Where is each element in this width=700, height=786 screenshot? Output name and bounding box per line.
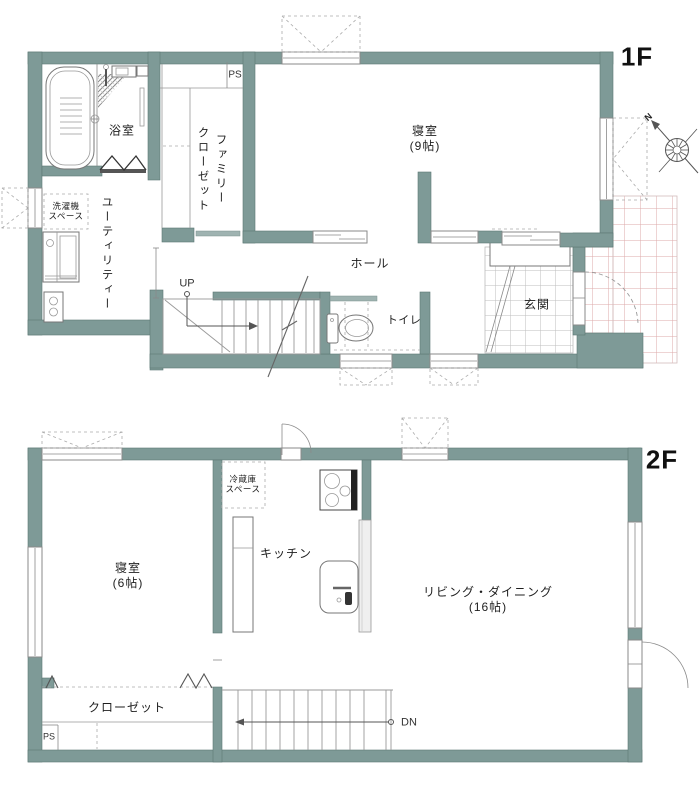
bedroom9-label: 寝室 (9帖)	[410, 124, 441, 154]
kitchen-label: キッチン	[260, 547, 312, 562]
bedroom6-size: (6帖)	[113, 576, 144, 591]
ps-label-2f: PS	[43, 730, 55, 745]
kitchen-sink-icon	[320, 561, 358, 613]
hall-label: ホール	[350, 257, 389, 272]
living-dining-size: (16帖)	[423, 600, 553, 615]
floorplan-image: 1F 浴室 ファミリー クローゼット PS 寝室 (9帖) 洗濯機 スペース ユ…	[0, 0, 700, 786]
vanity-icon	[43, 232, 79, 282]
sliding-door	[313, 231, 367, 243]
sliding-door	[502, 232, 560, 245]
bedroom6-label: 寝室 (6帖)	[113, 561, 144, 591]
shower-area	[97, 64, 148, 166]
utility-label: ユーティリティー	[99, 196, 114, 312]
toilet-label: トイレ	[387, 314, 422, 329]
living-dining-label: リビング・ダイニング (16帖)	[423, 585, 553, 615]
bedroom9-size: (9帖)	[410, 139, 441, 154]
floor1-label: 1F	[621, 50, 653, 65]
toilet-sliding-door	[330, 296, 377, 301]
family-closet-line2: クローゼット	[195, 127, 210, 214]
living-dining-name: リビング・ダイニング	[423, 585, 553, 600]
stairs-down-icon	[222, 690, 394, 750]
closet-label: クローゼット	[88, 701, 166, 716]
closet-sliding-door	[196, 231, 240, 236]
ps-label-1f: PS	[228, 68, 241, 83]
water-heater-icon	[44, 292, 63, 322]
family-closet-label: ファミリー クローゼット	[195, 127, 228, 214]
fridge-space-label: 冷蔵庫 スペース	[226, 474, 261, 494]
balcony-door	[628, 640, 688, 688]
floorplan-drawing	[0, 0, 700, 786]
bathroom-label: 浴室	[109, 124, 135, 139]
bathtub-icon	[46, 67, 99, 169]
bedroom6-name: 寝室	[113, 561, 144, 576]
entrance-label: 玄関	[524, 298, 550, 313]
bath-folding-door	[100, 156, 146, 173]
washer-space-label: 洗濯機 スペース	[49, 201, 84, 221]
stove-icon	[320, 470, 357, 510]
floor2-label: 2F	[646, 453, 678, 468]
bedroom9-name: 寝室	[410, 124, 441, 139]
dn-label: DN	[401, 716, 417, 731]
family-closet-line1: ファミリー	[213, 127, 228, 214]
compass-icon	[651, 120, 698, 173]
window-swing-marks-2f	[42, 418, 448, 448]
shoe-cabinet	[490, 242, 570, 266]
up-label: UP	[179, 277, 194, 292]
